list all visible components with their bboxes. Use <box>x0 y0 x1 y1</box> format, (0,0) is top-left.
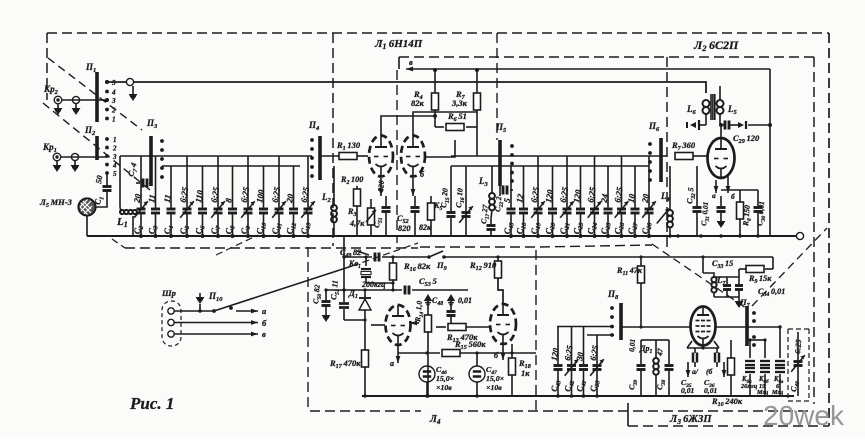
svg-text:2: 2 <box>111 107 116 115</box>
svg-text:L1: L1 <box>116 216 128 229</box>
svg-text:4,7к: 4,7к <box>349 219 365 228</box>
svg-text:100: 100 <box>254 188 266 203</box>
svg-text:5: 5 <box>113 170 117 178</box>
svg-text:С25: С25 <box>599 221 613 235</box>
svg-text:1: 1 <box>113 136 117 144</box>
svg-text:С41: С41 <box>575 379 588 392</box>
svg-text:110: 110 <box>193 189 205 204</box>
svg-text:С11: С11 <box>270 222 284 236</box>
svg-text:в: в <box>409 57 413 67</box>
svg-text:R2 100: R2 100 <box>340 175 363 186</box>
svg-text:20wek: 20wek <box>763 400 845 431</box>
svg-text:6:25: 6:25 <box>239 185 252 203</box>
svg-text:С33 15: С33 15 <box>712 259 733 270</box>
svg-text:С43: С43 <box>550 379 563 392</box>
svg-text:5: 5 <box>112 79 116 87</box>
svg-text:С28: С28 <box>640 221 654 235</box>
svg-text:С30 0,01: С30 0,01 <box>755 201 768 227</box>
svg-text:П3: П3 <box>146 118 158 130</box>
svg-text:L3: L3 <box>478 176 489 188</box>
svg-text:3,3к: 3,3к <box>451 98 468 108</box>
svg-text:6:25: 6:25 <box>558 185 571 203</box>
svg-text:С55: С55 <box>589 379 602 392</box>
svg-text:4: 4 <box>111 89 116 97</box>
svg-text:R6 51: R6 51 <box>447 111 467 123</box>
svg-text:6:25: 6:25 <box>793 339 803 354</box>
svg-text:С39: С39 <box>627 379 639 391</box>
svg-text:С31 0,01: С31 0,01 <box>700 202 712 227</box>
svg-text:П4: П4 <box>308 120 320 132</box>
svg-text:П9: П9 <box>436 260 447 272</box>
svg-text:0,01: 0,01 <box>458 296 472 305</box>
svg-text:0,01: 0,01 <box>627 339 637 353</box>
svg-text:Шр: Шр <box>161 288 176 298</box>
svg-text:С6: С6 <box>193 224 207 236</box>
svg-text:а/: а/ <box>692 367 699 376</box>
svg-text:П10: П10 <box>208 291 223 303</box>
svg-text:3: 3 <box>112 153 117 161</box>
svg-text:L2: L2 <box>321 192 332 204</box>
svg-text:1к: 1к <box>521 368 530 378</box>
svg-text:Мгц: Мгц <box>756 389 769 396</box>
svg-text:С34 0,01: С34 0,01 <box>758 287 785 298</box>
svg-text:11: 11 <box>162 194 173 204</box>
svg-text:С21: С21 <box>558 221 572 235</box>
svg-text:6:25: 6:25 <box>299 185 312 203</box>
svg-text:0,01: 0,01 <box>681 386 694 395</box>
svg-text:Кр2: Кр2 <box>43 84 59 96</box>
svg-text:С13: С13 <box>299 221 313 235</box>
svg-text:С19: С19 <box>529 221 543 235</box>
svg-text:С38: С38 <box>655 379 667 391</box>
svg-text:11: 11 <box>146 194 157 204</box>
svg-text:820: 820 <box>398 224 411 233</box>
svg-text:П6: П6 <box>648 121 660 133</box>
svg-text:R16 82к: R16 82к <box>403 261 431 273</box>
svg-text:4: 4 <box>112 162 117 170</box>
svg-text:6:25: 6:25 <box>612 185 625 203</box>
svg-text:Мгц: Мгц <box>771 389 784 396</box>
svg-text:2: 2 <box>112 145 117 153</box>
svg-text:б: б <box>731 192 735 201</box>
svg-text:С53 5: С53 5 <box>419 276 437 288</box>
svg-text:Л2 6С2П: Л2 6С2П <box>693 38 739 53</box>
svg-text:6:25: 6:25 <box>585 185 598 203</box>
svg-text:15,0×: 15,0× <box>436 374 454 383</box>
svg-text:26мгц: 26мгц <box>740 383 758 390</box>
svg-text:R1 130: R1 130 <box>336 140 361 152</box>
svg-text:П1: П1 <box>85 62 96 74</box>
svg-text:(б: (б <box>706 367 714 376</box>
svg-text:L5: L5 <box>727 104 738 116</box>
svg-text:С3: С3 <box>146 224 160 235</box>
svg-text:С24: С24 <box>585 221 599 235</box>
svg-text:б: б <box>262 318 267 328</box>
svg-text:R12 910: R12 910 <box>469 260 497 272</box>
svg-text:82к: 82к <box>411 98 425 108</box>
svg-text:а: а <box>262 306 267 316</box>
svg-text:820: 820 <box>376 180 386 192</box>
svg-text:С48: С48 <box>432 296 443 307</box>
svg-text:6:25: 6:25 <box>270 185 283 203</box>
svg-text:С29 120: С29 120 <box>733 133 760 145</box>
svg-text:0,01: 0,01 <box>704 386 717 395</box>
svg-text:С12: С12 <box>284 221 298 235</box>
svg-text:6:25: 6:25 <box>529 185 542 203</box>
svg-text:С23: С23 <box>571 221 585 235</box>
svg-text:×10в: ×10в <box>436 383 452 392</box>
svg-text:120: 120 <box>550 347 561 362</box>
svg-text:200кгц: 200кгц <box>361 280 386 289</box>
svg-text:Л3 6ЖЗП: Л3 6ЖЗП <box>669 414 712 426</box>
svg-text:С20: С20 <box>543 221 557 235</box>
svg-text:L6: L6 <box>686 104 697 116</box>
svg-text:С9: С9 <box>239 224 253 235</box>
svg-text:С8: С8 <box>223 224 237 235</box>
svg-text:С7: С7 <box>209 224 223 236</box>
svg-text:Кв1: Кв1 <box>348 259 361 270</box>
svg-text:R17 470к: R17 470к <box>329 358 361 370</box>
svg-text:Л5 МН-3: Л5 МН-3 <box>39 197 73 209</box>
svg-text:а: а <box>390 359 394 368</box>
svg-text:R7 360: R7 360 <box>671 140 696 152</box>
svg-text:С16 10: С16 10 <box>454 188 467 209</box>
svg-text:120: 120 <box>543 188 555 203</box>
svg-text:R9 15к: R9 15к <box>748 274 772 285</box>
svg-text:6:25: 6:25 <box>209 185 222 203</box>
svg-text:С26: С26 <box>612 220 626 235</box>
svg-text:С40: С40 <box>789 380 801 392</box>
svg-text:Л1 6Н14П: Л1 6Н14П <box>374 38 423 51</box>
svg-text:120: 120 <box>571 188 583 203</box>
svg-text:С15 20: С15 20 <box>439 188 452 209</box>
svg-text:б: б <box>420 170 425 179</box>
svg-text:Кр1: Кр1 <box>42 142 57 154</box>
svg-text:L4: L4 <box>660 191 671 203</box>
svg-text:С27: С27 <box>626 220 640 235</box>
svg-text:R8 150: R8 150 <box>741 205 754 228</box>
svg-text:6:25: 6:25 <box>178 185 191 203</box>
svg-text:Рис. 1: Рис. 1 <box>129 394 174 413</box>
svg-text:1: 1 <box>112 116 116 124</box>
svg-text:×10в: ×10в <box>486 383 502 392</box>
svg-text:П7: П7 <box>739 297 751 309</box>
svg-text:в: в <box>262 329 266 339</box>
svg-text:С32 5: С32 5 <box>685 187 698 204</box>
svg-text:3: 3 <box>111 97 116 105</box>
svg-text:R3: R3 <box>347 207 356 218</box>
svg-text:С7 4: С7 4 <box>126 162 140 178</box>
svg-text:6:25: 6:25 <box>589 345 601 362</box>
svg-text:82к: 82к <box>419 223 432 232</box>
svg-text:П2: П2 <box>84 125 96 137</box>
svg-text:С5: С5 <box>178 224 192 235</box>
svg-text:а: а <box>712 191 716 200</box>
svg-text:50: 50 <box>94 175 104 185</box>
svg-text:R10 240к: R10 240к <box>711 397 743 408</box>
svg-text:6:25: 6:25 <box>563 345 575 362</box>
svg-text:С10: С10 <box>254 221 268 235</box>
svg-text:П8: П8 <box>607 289 619 301</box>
svg-text:С18: С18 <box>514 221 528 235</box>
svg-text:С4: С4 <box>162 224 176 235</box>
svg-text:15,0×: 15,0× <box>486 374 504 383</box>
svg-text:Л4: Л4 <box>429 414 441 426</box>
